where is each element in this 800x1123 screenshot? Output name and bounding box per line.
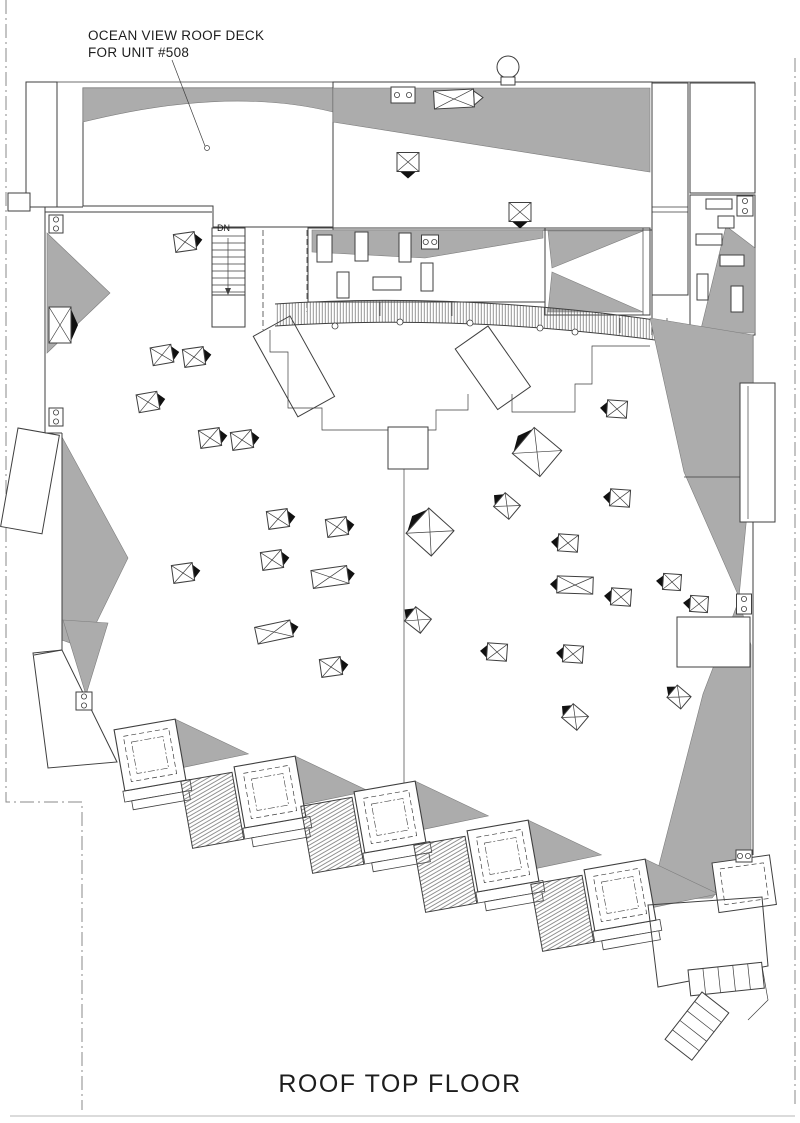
ocean-view-roof-deck xyxy=(83,60,333,227)
skylight-icon xyxy=(198,427,228,449)
skylight-icon xyxy=(550,576,594,594)
left-roof-triangle-lower xyxy=(62,437,128,648)
skylight-icon xyxy=(662,681,691,709)
roof-plan-drawing: OCEAN VIEW ROOF DECK FOR UNIT #508 DN RO… xyxy=(0,0,800,1123)
roof-dome-vent xyxy=(497,56,519,78)
roof-plan-sheet: OCEAN VIEW ROOF DECK FOR UNIT #508 DN RO… xyxy=(0,0,800,1123)
skylight-icon xyxy=(507,423,562,477)
plank-band-a xyxy=(652,83,688,295)
exterior-stair-flight xyxy=(665,992,729,1060)
skylight-icon xyxy=(602,488,630,507)
start-gray-triangle xyxy=(63,620,108,695)
skylight-icon xyxy=(488,488,520,519)
center-roof-steps xyxy=(253,316,650,783)
skylight-icon xyxy=(397,153,419,179)
skylight-icon xyxy=(255,618,301,644)
skylight-icon xyxy=(550,533,578,552)
equipment-unit xyxy=(737,196,753,216)
deck-roof-slope xyxy=(83,88,333,122)
skylight-icon xyxy=(266,508,296,530)
hatched-ramp-west xyxy=(253,316,334,417)
stair-dn-label: DN xyxy=(217,223,230,233)
equipment-unit xyxy=(737,594,752,614)
skylight-icon xyxy=(556,699,588,730)
right-slope-upper xyxy=(650,318,753,597)
skylight-icon xyxy=(555,644,583,663)
right-edge-deck xyxy=(740,383,775,522)
skylight-icon xyxy=(655,573,681,591)
dome-neck xyxy=(501,77,515,85)
sheet-title: ROOF TOP FLOOR xyxy=(278,1070,521,1098)
skylight-icon xyxy=(173,231,203,253)
skylight-icon xyxy=(325,516,355,538)
annotations: OCEAN VIEW ROOF DECK FOR UNIT #508 DN RO… xyxy=(88,28,522,1098)
callout-line2: FOR UNIT #508 xyxy=(88,45,189,60)
skylight-icon xyxy=(171,562,201,584)
terminal-white-square xyxy=(712,855,776,913)
skylight-icon xyxy=(599,399,627,418)
boardwalk-post xyxy=(397,319,403,325)
skylight-icon xyxy=(230,429,260,451)
band-divider xyxy=(652,207,688,212)
stair-direction-arrow xyxy=(225,288,231,295)
bowtie-slope-bottom xyxy=(548,272,643,312)
skylight-icon xyxy=(319,656,349,678)
stair-landing-hatch xyxy=(212,295,245,327)
left-block xyxy=(1,207,307,648)
bowtie-slope-top xyxy=(548,231,643,268)
plank-strip xyxy=(26,82,57,207)
boardwalk-post xyxy=(572,329,578,335)
dn-stair xyxy=(212,228,245,327)
callout-line1: OCEAN VIEW ROOF DECK xyxy=(88,28,264,43)
skylight-icon xyxy=(311,565,356,589)
top-center-block xyxy=(333,56,652,230)
skylight-icon xyxy=(603,587,631,606)
equipment-unit xyxy=(49,408,63,426)
skylight-icon xyxy=(509,203,531,229)
block-roof-slope xyxy=(333,88,650,172)
equipment-unit xyxy=(736,850,752,862)
skylight-icon xyxy=(150,343,181,366)
callout-leader-dot xyxy=(205,146,210,151)
skylight-icon xyxy=(401,503,454,556)
right-roof-slopes xyxy=(650,295,775,900)
left-tilted-planter xyxy=(1,428,60,534)
right-planter-box xyxy=(677,617,750,667)
plank-band-b xyxy=(690,83,755,193)
boardwalk-post xyxy=(332,323,338,329)
equipment-unit xyxy=(422,235,439,249)
skylight-icon xyxy=(260,549,290,571)
equipment-unit xyxy=(76,692,92,710)
skylight-icon xyxy=(136,390,167,413)
equipment-unit xyxy=(391,87,415,103)
stair-treads xyxy=(212,236,245,292)
hatched-ramp-east xyxy=(455,326,530,410)
boardwalk-post xyxy=(467,320,473,326)
skylight-icon xyxy=(182,346,212,368)
skylight-icon xyxy=(479,642,507,661)
terminal-steps xyxy=(688,962,764,996)
equipment-unit xyxy=(49,215,63,233)
topleft-deck-strip xyxy=(8,82,57,211)
boardwalk-post xyxy=(537,325,543,331)
start-hatched-deck xyxy=(33,650,117,768)
center-hatched-bump xyxy=(388,427,428,469)
small-roof-box xyxy=(8,193,30,211)
sawtooth-balcony-chain xyxy=(112,708,724,961)
skylight-icon xyxy=(682,595,708,613)
